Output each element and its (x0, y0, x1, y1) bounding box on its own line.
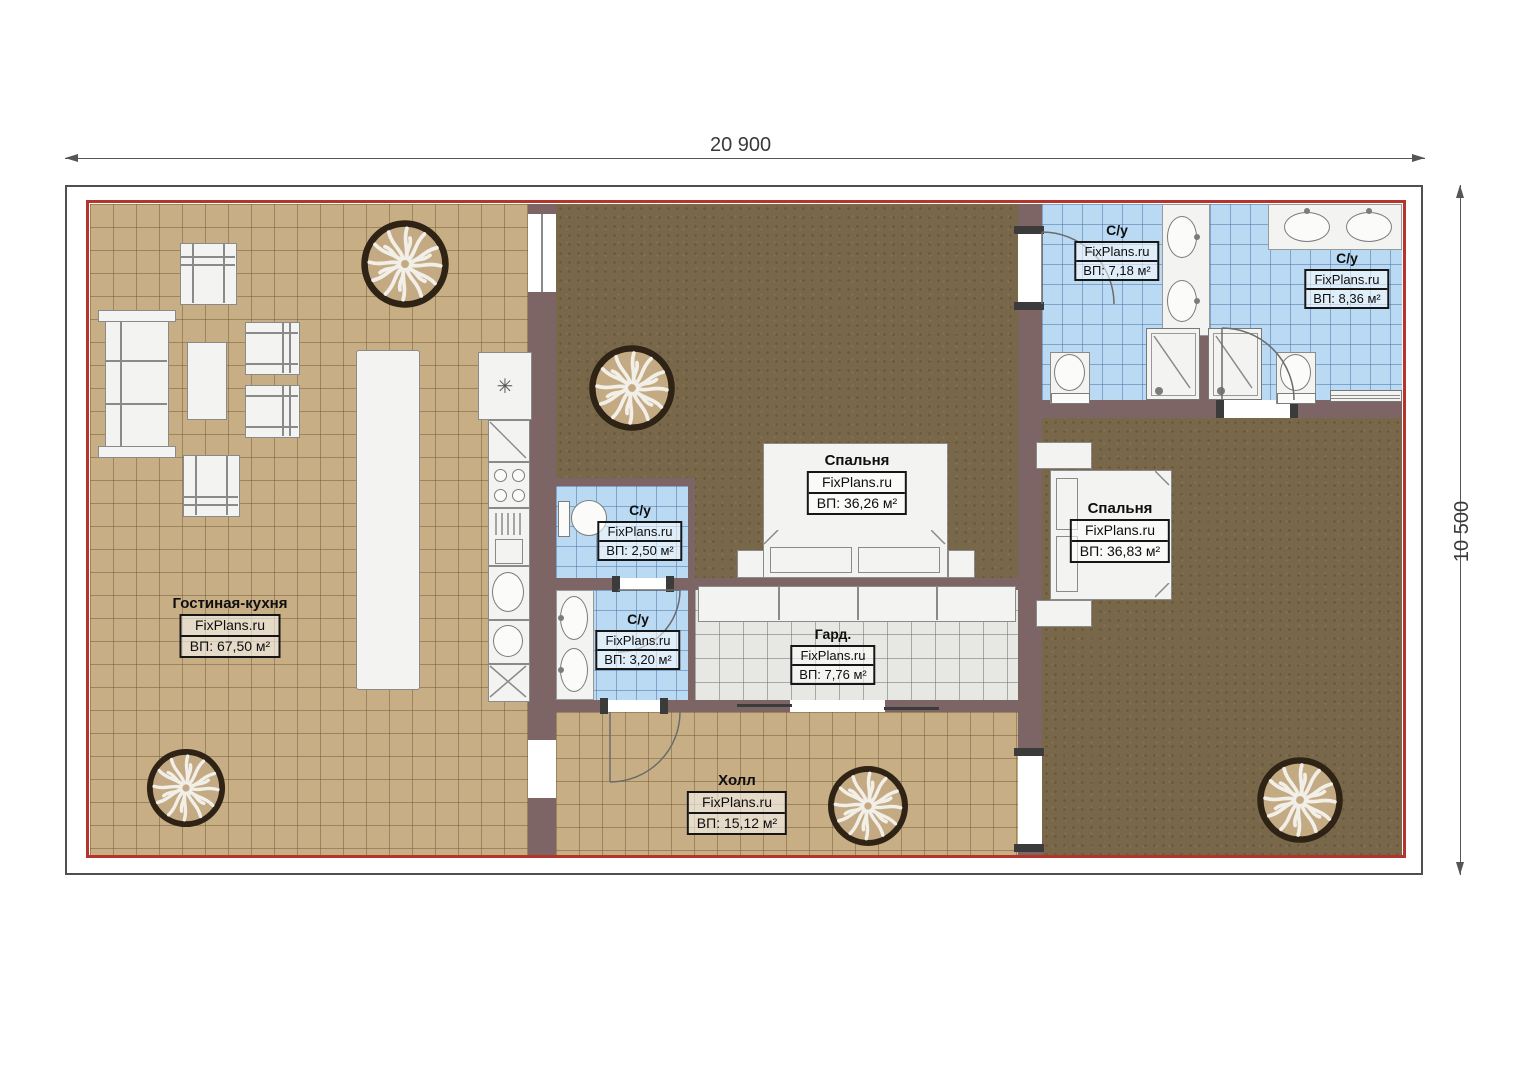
stove (488, 462, 530, 508)
watermark: FixPlans.ru (809, 473, 905, 494)
sofa-armrest (98, 446, 176, 458)
room-label-bath-mid-upper: С/у FixPlans.ruВП: 2,50 м² (597, 502, 682, 561)
watermark: FixPlans.ru (792, 647, 873, 666)
sink (1167, 216, 1197, 258)
floor-plan-canvas: 20 900 10 500 (0, 0, 1528, 1080)
room-name: С/у (595, 611, 680, 628)
door-opening (1018, 756, 1042, 844)
room-label-bath-top-left: С/у FixPlans.ruВП: 7,18 м² (1074, 222, 1159, 281)
pillow (770, 547, 852, 573)
room-name: С/у (1074, 222, 1159, 239)
door-jamb (1014, 844, 1044, 852)
tap-icon (558, 667, 564, 673)
room-area: ВП: 67,50 м² (182, 637, 278, 656)
tap-icon (1366, 208, 1372, 214)
toilet (1050, 352, 1090, 404)
room-area: ВП: 7,76 м² (792, 666, 873, 683)
sink (1346, 212, 1392, 242)
chair (245, 385, 300, 438)
tree-icon (358, 217, 452, 311)
tap-icon (1304, 208, 1310, 214)
sliding-door-opening (790, 700, 885, 712)
door-swing (1222, 328, 1296, 402)
door-opening (618, 578, 668, 590)
room-area: ВП: 8,36 м² (1306, 290, 1387, 307)
kitchen-unit (488, 664, 530, 702)
door-jamb (1014, 302, 1044, 310)
room-label-bath-top-right: С/у FixPlans.ruВП: 8,36 м² (1304, 250, 1389, 309)
tap-icon (558, 615, 564, 621)
arrow-right-icon (1412, 154, 1425, 162)
room-name: Гостиная-кухня (173, 595, 288, 612)
room-area: ВП: 3,20 м² (597, 651, 678, 668)
room-area: ВП: 2,50 м² (599, 542, 680, 559)
nightstand (1036, 442, 1092, 469)
kitchen-island (356, 350, 420, 690)
wall (556, 478, 695, 486)
tree-icon (144, 746, 228, 830)
nightstand (948, 550, 975, 578)
dimension-height-label: 10 500 (1451, 501, 1474, 562)
armchair (180, 243, 237, 305)
pillow (858, 547, 940, 573)
nightstand (737, 550, 764, 578)
door-jamb (1014, 226, 1044, 234)
nightstand (1036, 600, 1092, 627)
arrow-left-icon (65, 154, 78, 162)
radiator (1330, 390, 1402, 402)
door-opening (528, 740, 556, 798)
watermark: FixPlans.ru (1072, 521, 1168, 542)
door-jamb (1014, 748, 1044, 756)
tree-icon (586, 342, 678, 434)
room-name: Спальня (807, 452, 907, 469)
door-swing (610, 712, 682, 784)
chair (245, 322, 300, 375)
room-area: ВП: 7,18 м² (1076, 262, 1157, 279)
sink (1284, 212, 1330, 242)
tree-icon (825, 763, 911, 849)
sink-cabinet (488, 508, 530, 566)
fridge: ✳ (478, 352, 532, 420)
tap-icon (1194, 298, 1200, 304)
dimension-line-top (65, 158, 1425, 159)
watermark: FixPlans.ru (599, 523, 680, 542)
room-label-hall: Холл FixPlans.ruВП: 15,12 м² (687, 772, 787, 835)
watermark: FixPlans.ru (597, 632, 678, 651)
room-name: С/у (1304, 250, 1389, 267)
coffee-table (187, 342, 227, 420)
door-jamb (600, 698, 608, 714)
wall (688, 478, 695, 712)
sofa-armrest (98, 310, 176, 322)
armchair (183, 455, 240, 517)
room-name: С/у (597, 502, 682, 519)
sink (1167, 280, 1197, 322)
kitchen-corner-unit (488, 420, 530, 462)
sliding-door-track (737, 704, 792, 707)
washer (488, 566, 530, 620)
room-label-living-kitchen: Гостиная-кухня FixPlans.ruВП: 67,50 м² (173, 595, 288, 658)
snowflake-icon: ✳ (479, 353, 531, 419)
watermark: FixPlans.ru (1076, 243, 1157, 262)
shower (1146, 328, 1200, 400)
door-opening (1018, 232, 1042, 304)
room-label-wardrobe: Гард. FixPlans.ruВП: 7,76 м² (790, 626, 875, 685)
washer (488, 620, 530, 664)
room-name: Спальня (1070, 500, 1170, 517)
room-area: ВП: 36,26 м² (809, 494, 905, 513)
door-opening (606, 700, 662, 712)
dimension-width-label: 20 900 (710, 134, 771, 157)
sliding-door-track (884, 707, 939, 710)
room-label-bedroom-center: Спальня FixPlans.ruВП: 36,26 м² (807, 452, 907, 515)
window-frame (541, 214, 543, 292)
arrow-down-icon (1456, 862, 1464, 875)
room-label-bedroom-right: Спальня FixPlans.ruВП: 36,83 м² (1070, 500, 1170, 563)
sink (560, 648, 588, 692)
sofa (105, 318, 169, 448)
room-name: Холл (687, 772, 787, 789)
tree-icon (1254, 754, 1346, 846)
closet-row (698, 586, 1016, 622)
arrow-up-icon (1456, 185, 1464, 198)
sink (560, 596, 588, 640)
watermark: FixPlans.ru (689, 793, 785, 814)
room-label-bath-mid-lower: С/у FixPlans.ruВП: 3,20 м² (595, 611, 680, 670)
room-name: Гард. (790, 626, 875, 643)
tap-icon (1194, 234, 1200, 240)
watermark: FixPlans.ru (1306, 271, 1387, 290)
room-area: ВП: 15,12 м² (689, 814, 785, 833)
room-area: ВП: 36,83 м² (1072, 542, 1168, 561)
watermark: FixPlans.ru (182, 616, 278, 637)
